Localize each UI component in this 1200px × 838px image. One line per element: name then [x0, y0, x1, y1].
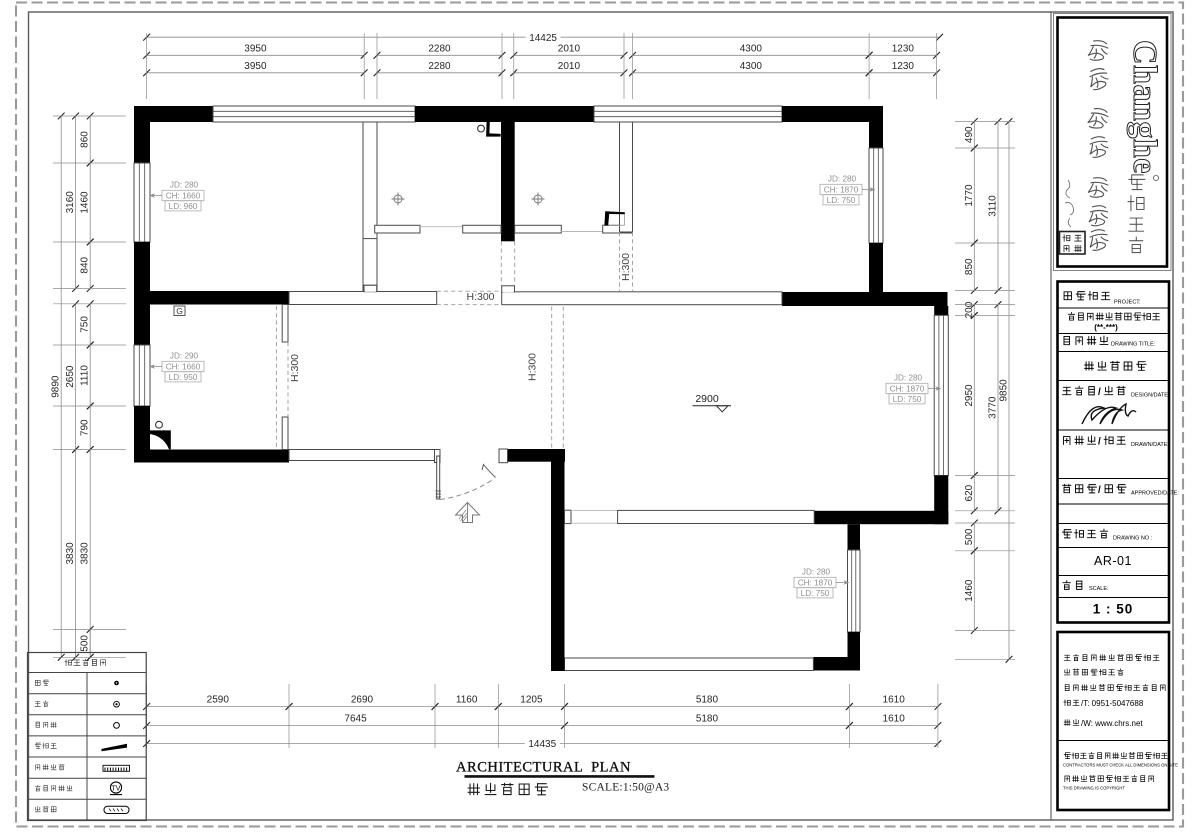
svg-text:2900: 2900	[695, 393, 719, 405]
svg-text:JD: 280: JD: 280	[828, 175, 857, 184]
svg-text:APPROVED/DATE:: APPROVED/DATE:	[1131, 491, 1179, 497]
svg-text:LD: 960: LD: 960	[169, 202, 198, 211]
svg-text:3950: 3950	[244, 44, 267, 55]
svg-text:14435: 14435	[528, 739, 556, 750]
svg-text:2690: 2690	[351, 695, 374, 706]
svg-text:CONTRACTORS MUST CHECK ALL DIM: CONTRACTORS MUST CHECK ALL DIMENSIONS ON…	[1063, 763, 1178, 768]
svg-text:2280: 2280	[428, 44, 451, 55]
svg-text:H:300: H:300	[620, 253, 632, 281]
svg-text:CH: 1870: CH: 1870	[824, 185, 859, 194]
svg-text:1610: 1610	[883, 714, 906, 725]
svg-text:3770: 3770	[988, 396, 999, 419]
svg-text:CH: 1870: CH: 1870	[798, 578, 833, 587]
svg-text:3830: 3830	[80, 542, 91, 565]
svg-text:500: 500	[80, 635, 91, 652]
svg-text:H:300: H:300	[289, 354, 301, 382]
svg-text:9890: 9890	[51, 375, 62, 398]
svg-text:1770: 1770	[964, 184, 975, 207]
svg-text:THIS DRAWING IS COPYRIGHT: THIS DRAWING IS COPYRIGHT	[1063, 786, 1125, 791]
svg-text:CH: 1660: CH: 1660	[166, 191, 201, 200]
svg-text:LD: 750: LD: 750	[827, 196, 856, 205]
svg-text:LD: 750: LD: 750	[893, 395, 922, 404]
svg-text:TV: TV	[112, 785, 121, 792]
svg-text:1610: 1610	[883, 695, 906, 706]
svg-text:DRAWN/DATE:: DRAWN/DATE:	[1131, 442, 1169, 448]
svg-text:7645: 7645	[344, 714, 367, 725]
svg-text:1 : 50: 1 : 50	[1093, 602, 1134, 617]
svg-text:1205: 1205	[520, 695, 543, 706]
svg-text:JD: 280: JD: 280	[894, 374, 923, 383]
svg-text:1230: 1230	[892, 61, 915, 72]
svg-text:5180: 5180	[696, 695, 719, 706]
svg-text:500: 500	[964, 528, 975, 545]
svg-text:ARCHITECTURAL PLAN: ARCHITECTURAL PLAN	[456, 760, 631, 776]
svg-text:JD: 280: JD: 280	[170, 181, 199, 190]
svg-text:2280: 2280	[428, 61, 451, 72]
svg-text:CH: 1660: CH: 1660	[166, 362, 201, 371]
svg-text:AR-01: AR-01	[1094, 554, 1132, 568]
svg-text:LD: 750: LD: 750	[801, 589, 830, 598]
svg-text:2650: 2650	[65, 365, 76, 388]
svg-text:2950: 2950	[964, 384, 975, 407]
svg-text:5180: 5180	[696, 714, 719, 725]
svg-text:850: 850	[964, 258, 975, 275]
svg-text:H:300: H:300	[466, 291, 494, 303]
svg-text:1460: 1460	[80, 191, 91, 214]
svg-text:/T: 0951-5047688: /T: 0951-5047688	[1081, 699, 1144, 708]
svg-text:3160: 3160	[65, 191, 76, 214]
svg-text:LD: 950: LD: 950	[169, 373, 198, 382]
svg-text:3950: 3950	[244, 61, 267, 72]
svg-text:790: 790	[80, 419, 91, 436]
svg-text:4300: 4300	[740, 44, 763, 55]
svg-text:/: /	[1098, 437, 1101, 448]
svg-text:(**-***): (**-***)	[1094, 323, 1118, 332]
svg-text:G: G	[176, 306, 183, 316]
svg-text:PROJECT:: PROJECT:	[1114, 300, 1141, 306]
svg-text:840: 840	[80, 256, 91, 273]
svg-text:CH: 1870: CH: 1870	[890, 384, 925, 393]
svg-text:860: 860	[80, 131, 91, 148]
svg-text:2010: 2010	[558, 44, 581, 55]
svg-text:DESIGN/DATE:: DESIGN/DATE:	[1131, 393, 1170, 399]
svg-text:DRAWING TITLE:: DRAWING TITLE:	[1111, 342, 1156, 348]
svg-text:H:300: H:300	[527, 353, 539, 381]
svg-text:9850: 9850	[999, 379, 1010, 402]
svg-text:JD: 290: JD: 290	[170, 352, 199, 361]
svg-text:SCALE:: SCALE:	[1089, 586, 1109, 592]
svg-text:1160: 1160	[456, 695, 478, 706]
svg-text:620: 620	[964, 484, 975, 501]
svg-text:1110: 1110	[80, 365, 91, 386]
svg-text:2590: 2590	[207, 695, 230, 706]
svg-text:Changhe: Changhe	[1126, 40, 1163, 174]
svg-text:JD: 280: JD: 280	[802, 568, 831, 577]
svg-text:490: 490	[964, 126, 975, 143]
svg-text:2010: 2010	[558, 61, 581, 72]
svg-text:/: /	[1098, 485, 1101, 496]
svg-text:3830: 3830	[65, 542, 76, 565]
svg-text:4300: 4300	[740, 61, 763, 72]
svg-text:/W: www.chrs.net: /W: www.chrs.net	[1081, 719, 1143, 728]
svg-text:/: /	[1098, 387, 1101, 398]
svg-text:750: 750	[80, 316, 91, 333]
svg-text:3110: 3110	[988, 195, 999, 217]
svg-text:14425: 14425	[529, 33, 557, 44]
svg-text:1460: 1460	[964, 579, 975, 602]
svg-text:1230: 1230	[892, 44, 915, 55]
svg-text:SCALE:1:50@A3: SCALE:1:50@A3	[582, 782, 669, 794]
svg-text:DRAWING NO :: DRAWING NO :	[1113, 536, 1153, 542]
